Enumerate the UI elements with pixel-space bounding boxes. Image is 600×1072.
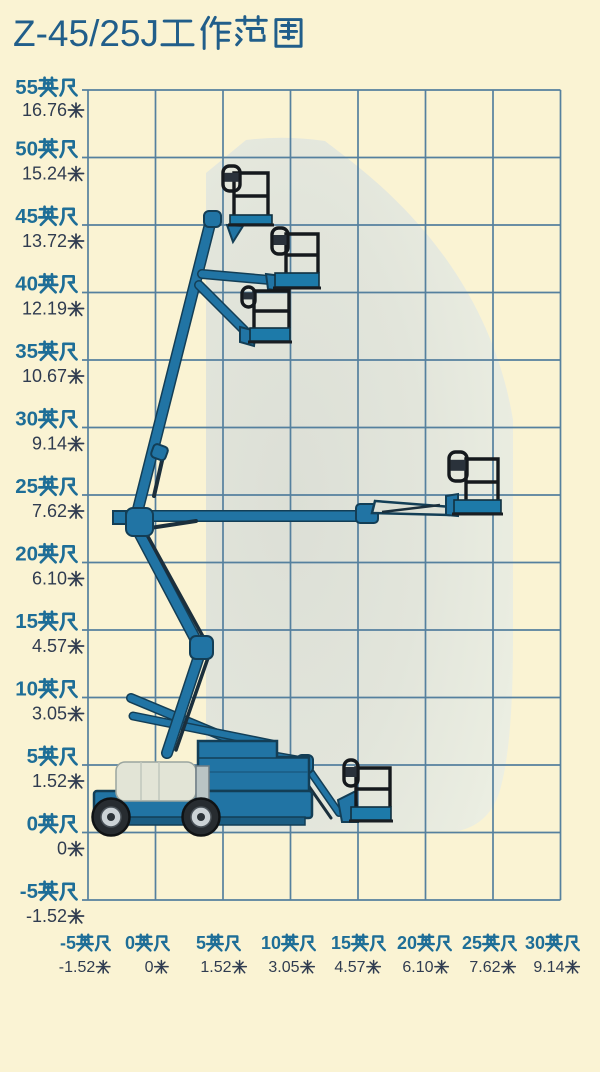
svg-text:25: 25 [15, 475, 38, 498]
svg-text:7.62: 7.62 [469, 959, 500, 976]
svg-text:4.57: 4.57 [32, 636, 67, 656]
svg-text:5: 5 [196, 933, 206, 953]
svg-text:5: 5 [27, 745, 38, 768]
svg-text:15: 15 [331, 933, 351, 953]
svg-text:40: 40 [15, 273, 38, 296]
svg-text:15: 15 [15, 610, 38, 633]
svg-text:-1.52: -1.52 [59, 959, 96, 976]
svg-text:13.72: 13.72 [22, 231, 67, 251]
svg-text:20: 20 [15, 543, 38, 566]
svg-text:9.14: 9.14 [533, 959, 564, 976]
svg-text:20: 20 [397, 933, 417, 953]
svg-text:9.14: 9.14 [32, 434, 67, 454]
svg-text:-1.52: -1.52 [26, 906, 67, 926]
svg-text:55: 55 [15, 76, 38, 99]
svg-text:6.10: 6.10 [32, 569, 67, 589]
svg-text:0: 0 [27, 813, 38, 836]
svg-text:12.19: 12.19 [22, 299, 67, 319]
svg-text:35: 35 [15, 340, 38, 363]
svg-text:0: 0 [145, 959, 154, 976]
svg-text:15.24: 15.24 [22, 164, 67, 184]
svg-text:0: 0 [57, 839, 67, 859]
svg-text:1.52: 1.52 [200, 959, 231, 976]
svg-text:6.10: 6.10 [402, 959, 433, 976]
svg-text:45: 45 [15, 205, 38, 228]
svg-text:3.05: 3.05 [268, 959, 299, 976]
svg-text:-5: -5 [20, 880, 38, 903]
svg-text:50: 50 [15, 138, 38, 161]
svg-text:-5: -5 [60, 933, 76, 953]
svg-text:16.76: 16.76 [22, 100, 67, 120]
svg-text:4.57: 4.57 [334, 959, 365, 976]
svg-text:10: 10 [261, 933, 281, 953]
svg-text:10.67: 10.67 [22, 366, 67, 386]
svg-text:30: 30 [525, 933, 545, 953]
svg-text:Z-45/25J: Z-45/25J [13, 13, 159, 54]
svg-text:25: 25 [462, 933, 482, 953]
svg-text:10: 10 [15, 678, 38, 701]
svg-text:0: 0 [125, 933, 135, 953]
svg-text:1.52: 1.52 [32, 771, 67, 791]
svg-text:7.62: 7.62 [32, 501, 67, 521]
svg-text:30: 30 [15, 408, 38, 431]
svg-text:3.05: 3.05 [32, 704, 67, 724]
